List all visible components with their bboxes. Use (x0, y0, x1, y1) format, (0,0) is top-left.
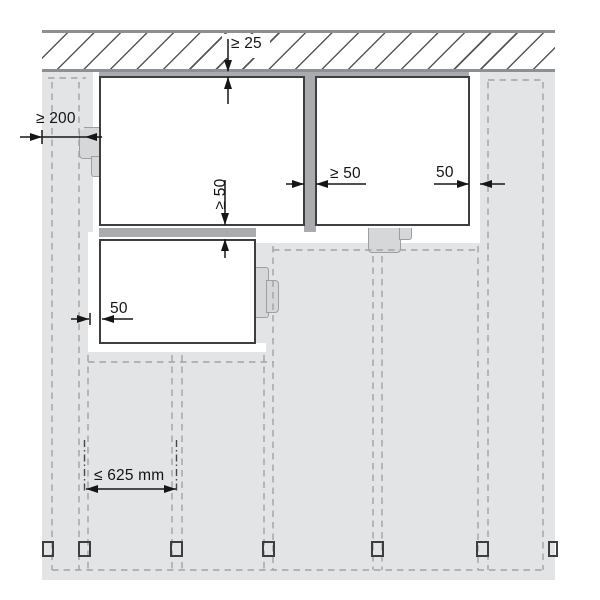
ceiling-hatch-band (42, 30, 555, 72)
fastener-clip-bottom-step (399, 228, 412, 240)
dimension-label-right-overhang: 50 (436, 164, 454, 181)
panel-upper-left (99, 76, 305, 226)
horizontal-joint-rail (99, 228, 256, 237)
panel-lower-left (99, 239, 256, 344)
dimension-label-support-spacing: ≤ 625 mm (94, 467, 164, 484)
dimension-label-vertical-joint-gap: ≥ 50 (330, 165, 361, 182)
installation-clearance-diagram: ≥ 25 ≥ 200 ≥ 50 50 ≥ 50 50 ≤ 625 mm (0, 0, 600, 600)
panel-area-cutout-lower-bottom (88, 343, 266, 352)
fastener-clip-right-bump (266, 280, 279, 313)
panel-upper-right (315, 76, 470, 226)
fastener-clip-bottom-panel-b (368, 228, 401, 253)
dimension-label-edge-distance: ≥ 200 (36, 110, 76, 127)
dimension-label-left-overhang: 50 (110, 300, 128, 317)
dimension-label-horizontal-joint-gap: ≥ 50 (212, 172, 228, 216)
dimension-label-top-clearance: ≥ 25 (231, 35, 262, 52)
